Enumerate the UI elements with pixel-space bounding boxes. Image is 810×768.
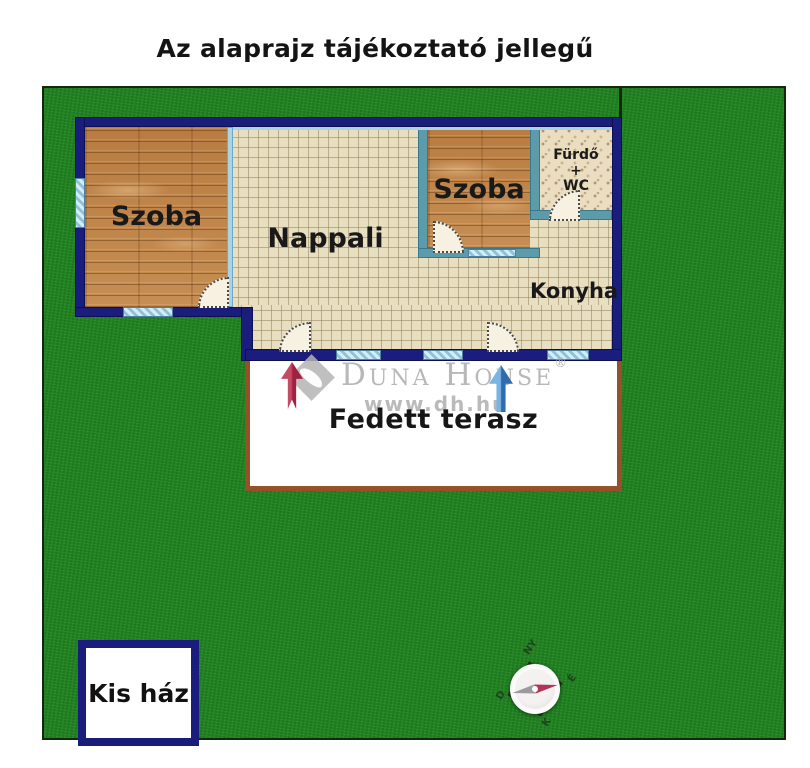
szoba2-left-wall (418, 127, 428, 258)
szoba2-label: Szoba (428, 174, 530, 205)
registered-mark: ® (554, 356, 567, 371)
top-wall-lining (233, 127, 612, 130)
szoba1-left-window (75, 178, 85, 228)
exterior-wall-right (612, 117, 622, 361)
furdo-left-wall (530, 127, 540, 220)
compass-north-label: É (566, 673, 579, 685)
szoba1-bottom-window (123, 307, 173, 317)
furdo-label-line1: Fürdő (540, 148, 612, 164)
small-house-label: Kis ház (88, 679, 189, 708)
terrace-label: Fedett terasz (245, 404, 622, 435)
furdo-label: Fürdő + WC (540, 148, 612, 195)
szoba2-wall-window (468, 249, 516, 257)
fence-line (619, 86, 622, 119)
brand-name: Duna House (341, 357, 554, 393)
szoba1-label: Szoba (85, 201, 228, 232)
floorplan-page: Az alaprajz tájékoztató jellegű Szoba Na… (0, 0, 810, 768)
furdo-label-line3: WC (540, 179, 612, 195)
konyha-label: Konyha (530, 279, 612, 303)
page-title: Az alaprajz tájékoztató jellegű (85, 34, 665, 63)
compass: NY É D K (496, 644, 580, 728)
small-house-box: Kis ház (78, 640, 199, 746)
watermark-brand: Duna House® (341, 356, 567, 393)
nappali-label: Nappali (233, 223, 418, 254)
furdo-label-line2: + (540, 164, 612, 180)
compass-south-label: D (494, 689, 508, 702)
compass-east-label: K (540, 716, 553, 729)
exterior-wall-top (75, 117, 622, 127)
